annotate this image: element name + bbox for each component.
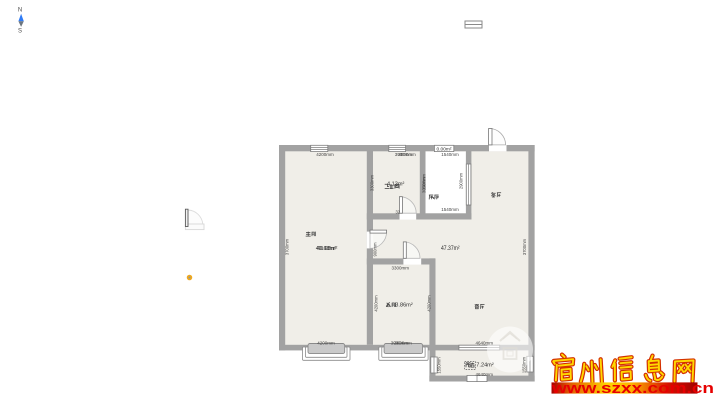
svg-text:4200mm: 4200mm [316, 152, 334, 157]
svg-text:3300mm: 3300mm [392, 266, 410, 271]
svg-text:4200mm: 4200mm [427, 295, 432, 312]
svg-text:3000mm: 3000mm [398, 152, 416, 157]
svg-text:47.37m²: 47.37m² [441, 245, 460, 252]
svg-text:3000mm: 3000mm [422, 176, 427, 193]
svg-text:4640mm: 4640mm [476, 372, 494, 377]
svg-text:1540mm: 1540mm [441, 207, 459, 212]
svg-text:4640mm: 4640mm [476, 341, 494, 346]
svg-text:1540mm: 1540mm [441, 152, 459, 157]
svg-text:3000mm: 3000mm [394, 340, 412, 345]
svg-text:7.24m²: 7.24m² [476, 362, 494, 368]
svg-text:www.szxx.com.cn: www.szxx.com.cn [551, 381, 714, 397]
svg-text:2900mm: 2900mm [459, 172, 464, 189]
svg-text:40.68m²: 40.68m² [317, 246, 338, 252]
svg-text:4200mm: 4200mm [317, 340, 335, 345]
svg-text:N: N [18, 7, 22, 13]
svg-text:S: S [18, 29, 22, 35]
svg-text:32: 32 [395, 209, 400, 214]
svg-text:3700mm: 3700mm [522, 238, 527, 255]
svg-text:1550mm: 1550mm [522, 356, 527, 373]
svg-text:0.00m²: 0.00m² [437, 146, 452, 152]
svg-text:4200mm: 4200mm [374, 295, 379, 312]
svg-text:1550mm: 1550mm [436, 357, 441, 374]
svg-text:3.86m²: 3.86m² [395, 303, 413, 309]
svg-text:900mm: 900mm [373, 242, 378, 256]
svg-text:3300mm: 3300mm [370, 174, 375, 191]
svg-text:3700mm: 3700mm [285, 238, 290, 255]
